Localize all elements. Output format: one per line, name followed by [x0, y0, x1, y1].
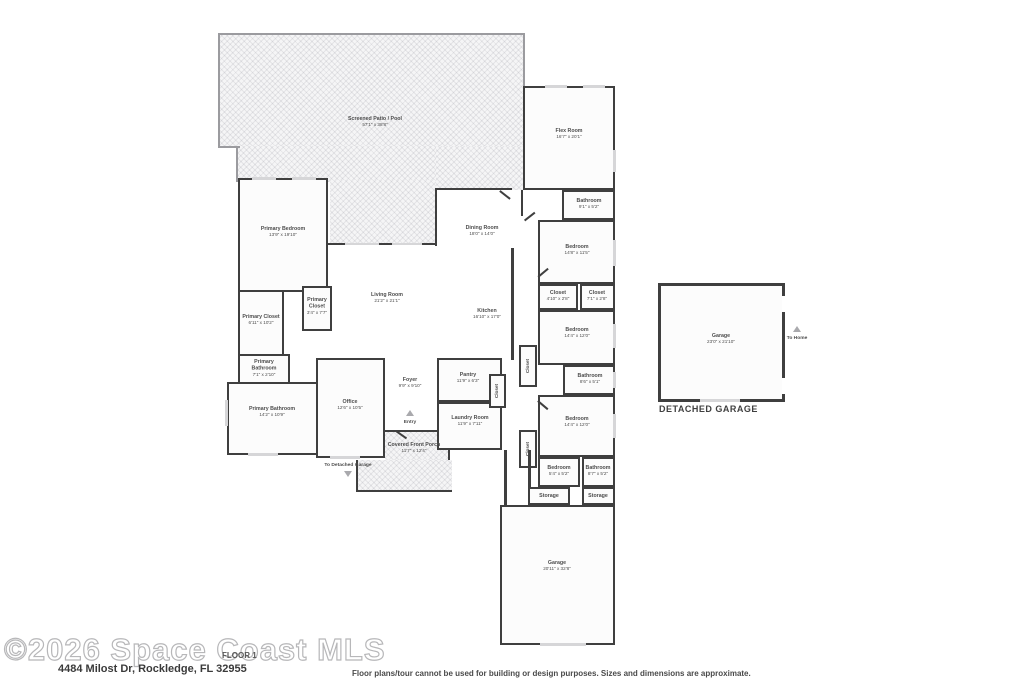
room-dims: 9'1" x 5'2" — [577, 204, 602, 210]
room-label-pantry: Pantry 11'9" x 6'3" — [457, 372, 479, 385]
dining-left-wall — [435, 188, 437, 246]
closet-vertical-label: Closet — [494, 384, 500, 398]
bedroom3-window — [613, 414, 616, 438]
room-name: Closet — [525, 359, 531, 373]
hall-top-wall — [521, 190, 523, 216]
disclaimer-text: Floor plans/tour cannot be used for buil… — [352, 669, 751, 678]
entry-arrow-icon — [406, 410, 414, 416]
room-label-dining: Dining Room 18'0" x 14'0" — [466, 225, 499, 238]
primary-bathroom — [227, 382, 318, 455]
room-dims: 16'7" x 20'1" — [556, 134, 583, 140]
patio-double-door-right — [524, 212, 535, 221]
room-label-garage-detached: Garage 23'0" x 21'10" — [707, 333, 735, 346]
room-dims: 11'7" x 12'4" — [388, 448, 441, 454]
room-dims: 14'4" x 12'0" — [564, 422, 589, 428]
detached-garage-door-opening-1 — [782, 296, 785, 312]
screened-patio-area-ext2 — [330, 180, 436, 245]
room-name: Bedroom — [547, 465, 570, 472]
primary-bedroom-window-1 — [252, 177, 276, 180]
room-name: Storage — [588, 493, 608, 500]
detached-garage-bottom-door — [700, 399, 740, 402]
room-dims: 14'4" x 12'0" — [564, 333, 589, 339]
room-name: Office — [337, 399, 362, 406]
room-dims: 5'4" x 5'2" — [547, 471, 570, 477]
room-name: Pantry — [457, 372, 479, 379]
room-label-primary-closet2: Primary Closet 3'4" x 7'7" — [302, 296, 332, 316]
bedroom1-window — [613, 240, 616, 266]
living-slider-window — [345, 243, 379, 245]
room-label-primary-bedroom: Primary Bedroom 13'9" x 19'10" — [261, 226, 305, 239]
room-name: Closet — [547, 290, 570, 297]
room-name: Closet — [494, 384, 500, 398]
room-name: Garage — [707, 333, 735, 340]
room-label-bathroom2: Bathroom 8'6" x 5'1" — [578, 373, 603, 386]
room-dims: 11'9" x 6'3" — [457, 378, 479, 384]
room-label-bathroom3: Bathroom 8'7" x 5'2" — [586, 465, 611, 478]
room-dims: 7'1" x 2'10" — [246, 372, 282, 378]
room-name: Primary Bathroom — [246, 358, 282, 372]
room-dims: 21'2" x 21'1" — [371, 298, 403, 304]
room-name: Bedroom — [565, 244, 590, 251]
to-detached-garage-arrow-icon — [344, 471, 352, 477]
room-label-office: Office 12'6" x 10'5" — [337, 399, 362, 412]
room-dims: 16'10" x 17'0" — [473, 314, 501, 320]
to-home-arrow-icon — [793, 326, 801, 332]
entry-label: Entry — [404, 420, 417, 425]
room-label-bathroom1: Bathroom 9'1" x 5'2" — [577, 198, 602, 211]
room-label-primary-closet1: Primary Closet 6'11" x 10'2" — [242, 314, 279, 327]
room-name: Screened Patio / Pool — [348, 116, 402, 123]
porch-bottom-wall — [356, 490, 452, 492]
screened-patio-area-ext3 — [436, 146, 523, 190]
primary-bath-window — [225, 400, 228, 426]
detached-garage-door-opening-2 — [782, 378, 785, 394]
room-dims: 7'1" x 2'8" — [587, 296, 607, 302]
floor-plan: Screened Patio / Pool 57'1" x 38'8" Flex… — [0, 0, 1024, 683]
room-label-porch: Covered Front Porch 11'7" x 12'4" — [388, 442, 441, 455]
room-label-living: Living Room 21'2" x 21'1" — [371, 292, 403, 305]
room-dims: 6'11" x 10'2" — [242, 320, 279, 326]
room-name: Laundry Room — [451, 415, 488, 422]
address-text: 4484 Milost Dr, Rockledge, FL 32955 — [58, 663, 247, 675]
closet-vertical-label: Closet — [525, 442, 531, 456]
patio-double-door-left — [500, 190, 511, 199]
hall-to-garage-wall-left — [504, 450, 507, 507]
bedroom2-window — [613, 324, 616, 348]
room-name: Bathroom — [577, 198, 602, 205]
room-label-closet1: Closet 4'10" x 2'8" — [547, 290, 570, 303]
room-name: Flex Room — [556, 128, 583, 135]
bathroom2-window — [613, 372, 616, 388]
room-name: Primary Bathroom — [249, 406, 295, 413]
floor-label: FLOOR 1 — [222, 651, 257, 660]
room-name: Bedroom — [564, 327, 589, 334]
office-window — [330, 456, 360, 459]
room-dims: 20'11" x 32'8" — [543, 566, 571, 572]
room-label-bedroom4: Bedroom 5'4" x 5'2" — [547, 465, 570, 478]
room-dims: 8'6" x 5'1" — [578, 379, 603, 385]
room-dims: 8'7" x 5'2" — [586, 471, 611, 477]
closet-vertical-label: Closet — [525, 359, 531, 373]
room-label-bedroom1: Bedroom 14'8" x 11'5" — [565, 244, 590, 257]
room-label-garage-attached: Garage 20'11" x 32'8" — [543, 560, 571, 573]
room-name: Kitchen — [473, 308, 501, 315]
room-name: Bedroom — [564, 416, 589, 423]
room-name: Bathroom — [586, 465, 611, 472]
room-name: Closet — [525, 442, 531, 456]
room-label-foyer: Foyer 9'9" x 9'10" — [399, 377, 422, 390]
room-dims: 57'1" x 38'8" — [348, 122, 402, 128]
room-name: Closet — [587, 290, 607, 297]
room-dims: 23'0" x 21'10" — [707, 339, 735, 345]
room-name: Primary Closet — [242, 314, 279, 321]
room-label-flex: Flex Room 16'7" x 20'1" — [556, 128, 583, 141]
room-label-primary-bath: Primary Bathroom 14'2" x 10'9" — [249, 406, 295, 419]
room-name: Garage — [543, 560, 571, 567]
room-label-kitchen: Kitchen 16'10" x 17'0" — [473, 308, 501, 321]
room-label-primary-bath-sm: Primary Bathroom 7'1" x 2'10" — [246, 358, 282, 378]
room-dims: 14'8" x 11'5" — [565, 250, 590, 256]
room-dims: 3'4" x 7'7" — [302, 310, 332, 316]
room-dims: 11'9" x 7'11" — [451, 421, 488, 427]
room-dims: 12'6" x 10'5" — [337, 405, 362, 411]
primary-bath-window-2 — [248, 453, 278, 456]
room-label-storage2: Storage — [588, 493, 608, 500]
kitchen-right-wall — [511, 248, 514, 360]
room-label-bedroom3: Bedroom 14'4" x 12'0" — [564, 416, 589, 429]
attached-garage — [500, 505, 615, 645]
room-label-patio: Screened Patio / Pool 57'1" x 38'8" — [348, 116, 402, 129]
room-dims: 18'0" x 14'0" — [466, 231, 499, 237]
room-label-storage1: Storage — [539, 493, 559, 500]
room-dims: 13'9" x 19'10" — [261, 232, 305, 238]
room-dims: 9'9" x 9'10" — [399, 383, 422, 389]
room-name: Foyer — [399, 377, 422, 384]
primary-bedroom-window-2 — [292, 177, 316, 180]
room-label-laundry: Laundry Room 11'9" x 7'11" — [451, 415, 488, 428]
flex-window-3 — [613, 150, 616, 172]
living-slider-window-2 — [392, 243, 422, 245]
room-name: Dining Room — [466, 225, 499, 232]
flex-window-2 — [583, 85, 605, 88]
flex-window-1 — [545, 85, 567, 88]
room-label-closet2: Closet 7'1" x 2'8" — [587, 290, 607, 303]
room-name: Living Room — [371, 292, 403, 299]
room-name: Covered Front Porch — [388, 442, 441, 449]
patio-step-wall-v — [236, 146, 238, 182]
room-dims: 4'10" x 2'8" — [547, 296, 570, 302]
room-dims: 14'2" x 10'9" — [249, 412, 295, 418]
detached-garage-caption: DETACHED GARAGE — [659, 404, 758, 414]
garage-door-window — [540, 643, 586, 646]
screened-patio-area — [218, 33, 525, 148]
room-name: Primary Closet — [302, 296, 332, 310]
room-name: Bathroom — [578, 373, 603, 380]
room-name: Storage — [539, 493, 559, 500]
to-home-label: To Home — [787, 336, 808, 341]
room-label-bedroom2: Bedroom 14'4" x 12'0" — [564, 327, 589, 340]
to-detached-garage-label: To Detached Garage — [324, 463, 371, 468]
room-name: Primary Bedroom — [261, 226, 305, 233]
